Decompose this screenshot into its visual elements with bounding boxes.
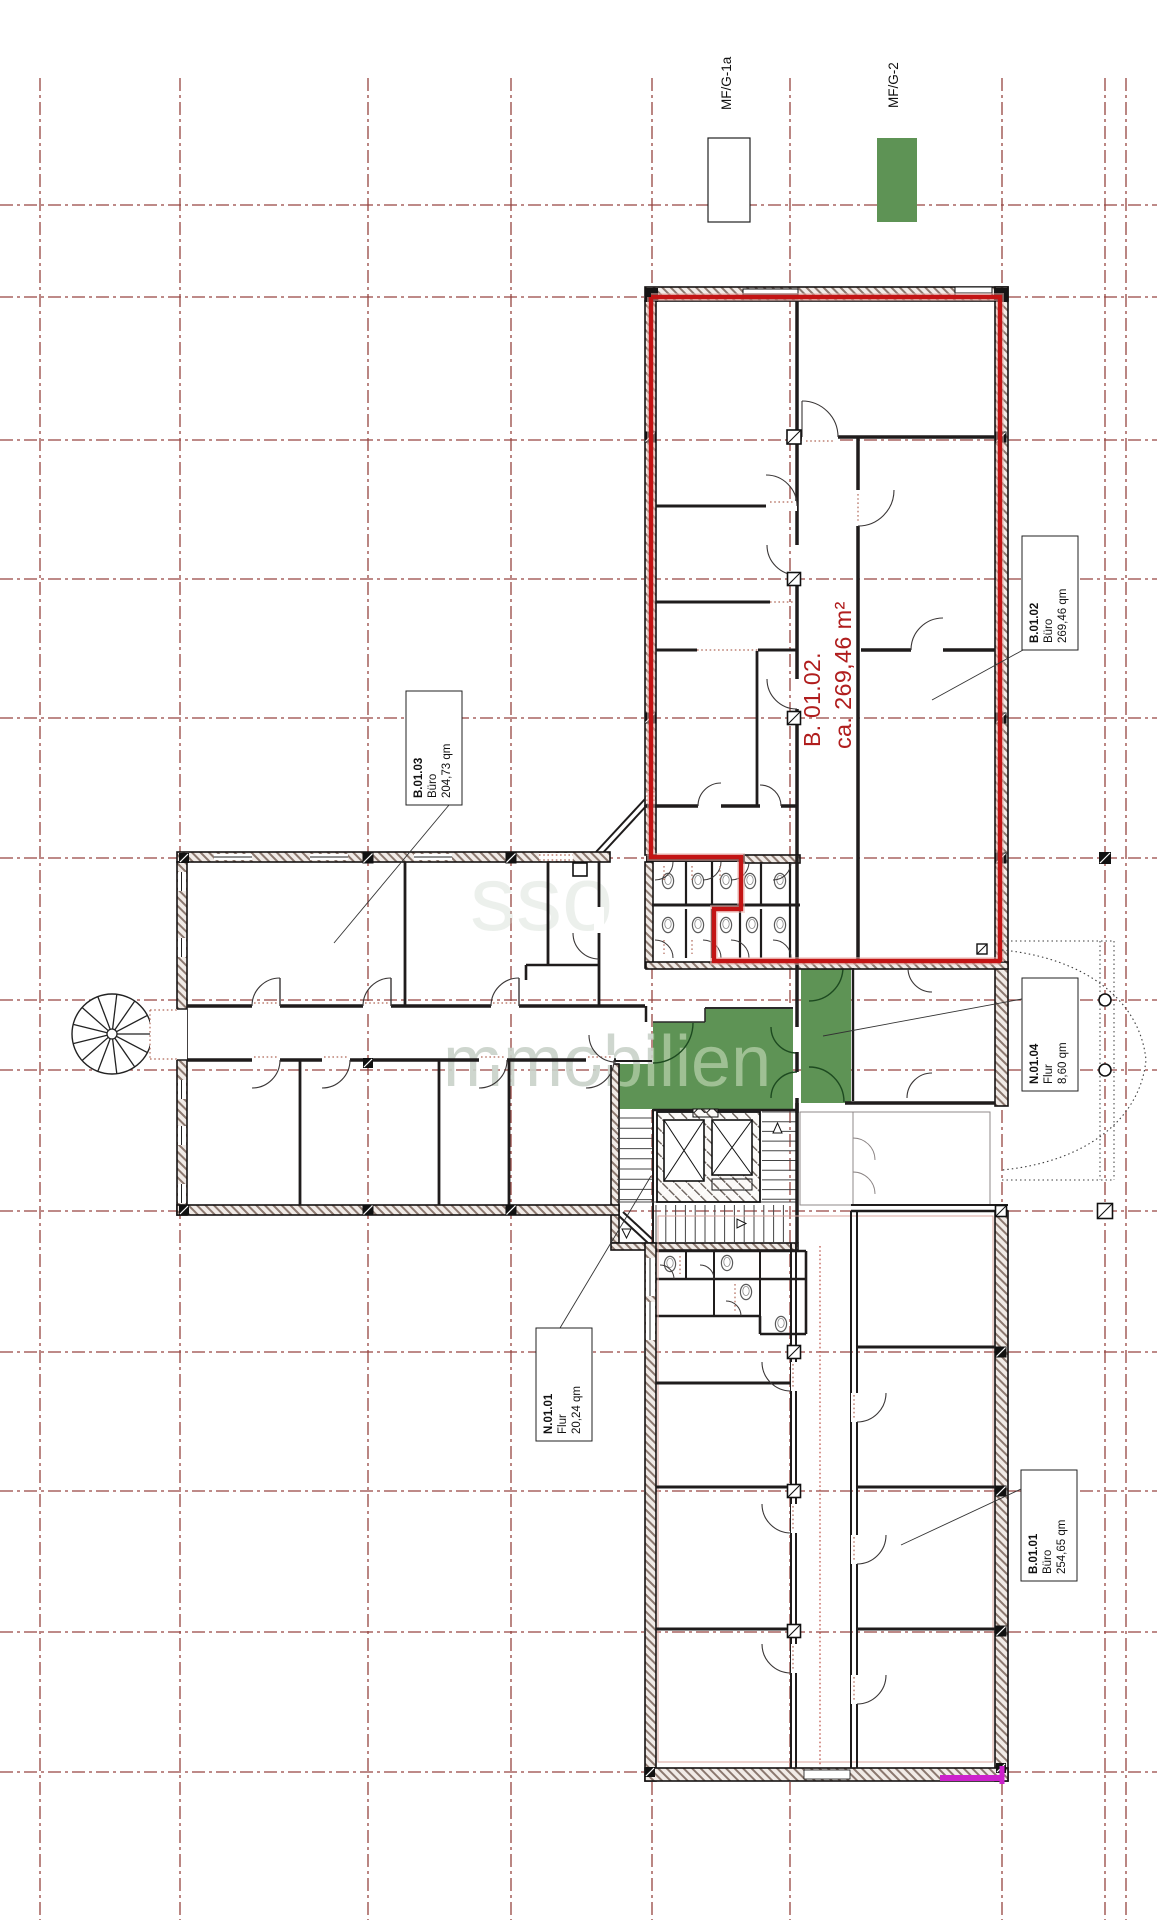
svg-text:B. 01.02.: B. 01.02. [799, 652, 825, 747]
svg-text:Flur: Flur [557, 1414, 569, 1434]
svg-text:MF/G-1a: MF/G-1a [719, 56, 734, 110]
svg-text:8,60 qm: 8,60 qm [1057, 1042, 1069, 1084]
svg-text:Büro: Büro [1043, 619, 1055, 643]
svg-text:254,65 qm: 254,65 qm [1056, 1520, 1068, 1574]
svg-text:MF/G-2: MF/G-2 [886, 62, 901, 108]
svg-text:B.01.03: B.01.03 [413, 758, 425, 798]
svg-text:Büro: Büro [427, 774, 439, 798]
svg-text:B.01.01: B.01.01 [1028, 1533, 1040, 1574]
svg-text:sso: sso [470, 848, 613, 950]
svg-text:B.01.02: B.01.02 [1029, 603, 1041, 643]
svg-text:269,46 qm: 269,46 qm [1057, 589, 1069, 643]
svg-text:ca. 269,46 m²: ca. 269,46 m² [830, 601, 856, 749]
svg-text:N.01.01: N.01.01 [543, 1393, 555, 1434]
svg-text:204,73 qm: 204,73 qm [441, 744, 453, 798]
svg-text:Büro: Büro [1042, 1550, 1054, 1574]
svg-text:Flur: Flur [1043, 1064, 1055, 1084]
svg-text:20,24 qm: 20,24 qm [571, 1386, 583, 1434]
svg-text:N.01.04: N.01.04 [1029, 1043, 1041, 1084]
